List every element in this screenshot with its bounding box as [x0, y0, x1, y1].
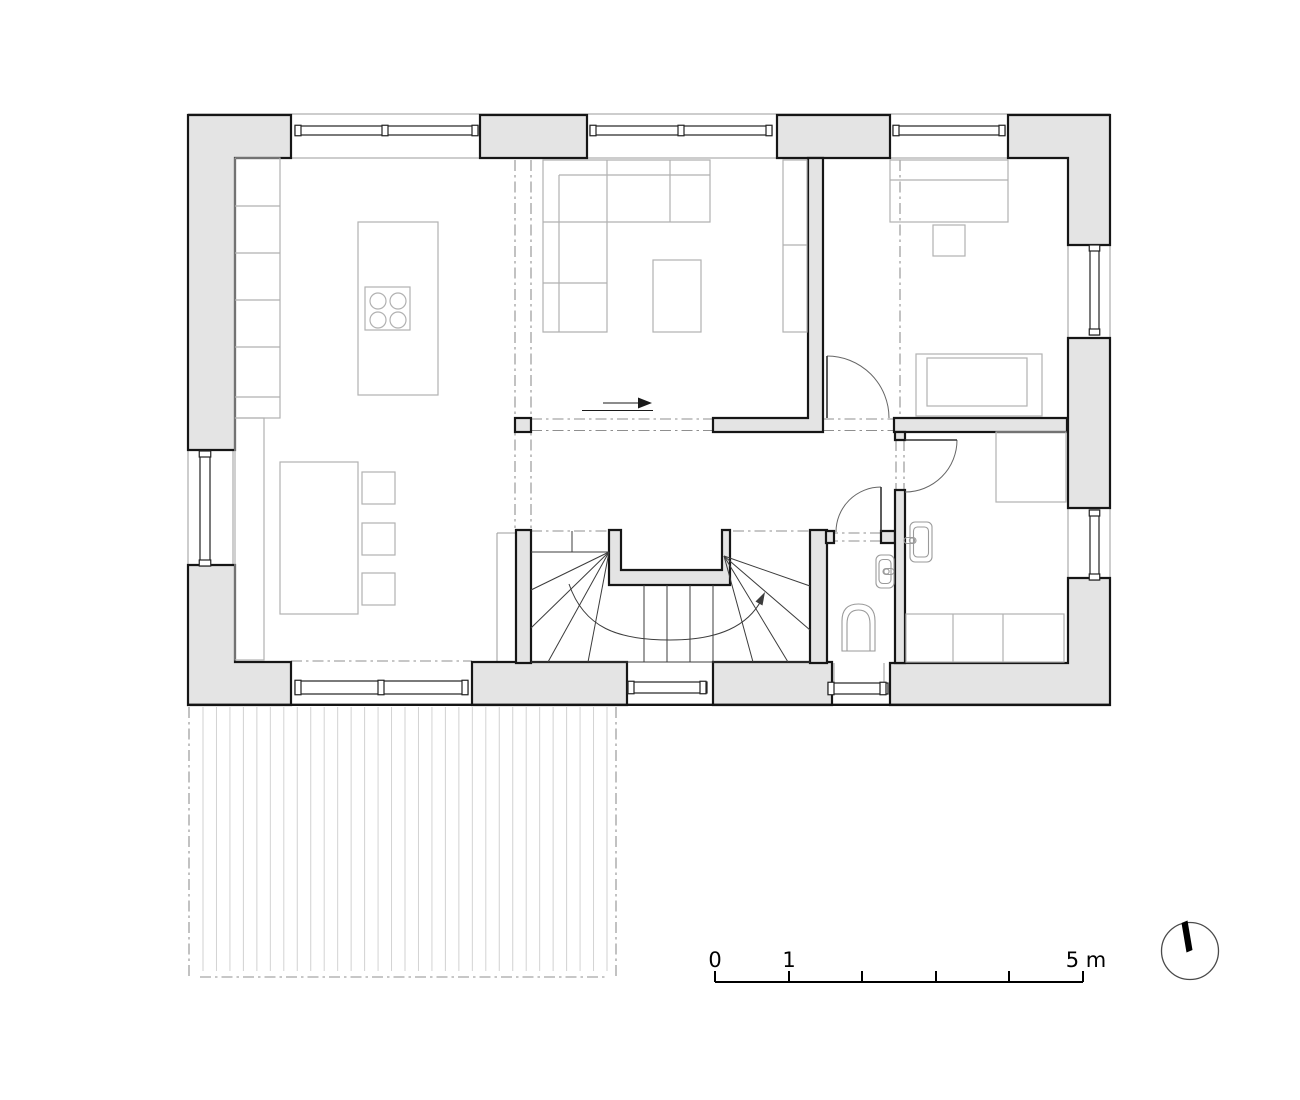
burner: [370, 312, 386, 328]
wall-stair-east: [810, 530, 827, 663]
window-right-1: [1090, 245, 1099, 335]
stair-line: [531, 552, 609, 590]
window-top-1-mullion: [472, 125, 478, 136]
stair-line: [724, 556, 810, 586]
arrow-head-icon: [638, 398, 652, 409]
wall-bath-west-stub: [895, 432, 905, 440]
pier-top-left: [188, 115, 291, 450]
wall-wc-north-a: [826, 531, 834, 543]
window-top-2-mullion: [678, 125, 684, 136]
window-top-1-mullion: [382, 125, 388, 136]
kitchen-counter: [235, 158, 280, 418]
stair-line: [724, 556, 810, 630]
window-bottom-3-mullion: [880, 682, 886, 695]
pier-top-right: [1008, 115, 1110, 245]
window-left: [200, 451, 210, 566]
staircase: [531, 531, 810, 662]
bed-mattress: [927, 358, 1027, 406]
wall-stair-core: [609, 530, 730, 585]
wall-stair-west: [516, 530, 531, 663]
wall-face-lines: [188, 114, 1110, 683]
window-right-2-mullion: [1089, 510, 1100, 516]
stair-line: [588, 552, 609, 662]
window-right-1-mullion: [1089, 329, 1100, 335]
window-bottom-3-mullion: [828, 682, 834, 695]
burner: [370, 293, 386, 309]
window-top-3-mullion: [893, 125, 899, 136]
bathroom-bench: [906, 614, 1064, 662]
stair-line: [548, 552, 609, 662]
window-top-3-mullion: [999, 125, 1005, 136]
tv-unit: [783, 160, 807, 332]
window-top-3: [893, 126, 1005, 135]
floor-plan: 0 1 5 m: [0, 0, 1300, 1100]
window-top-1-mullion: [295, 125, 301, 136]
wardrobe: [890, 160, 1008, 222]
wall-wc-north-b: [881, 531, 895, 543]
door-bedroom-swing: [827, 356, 889, 418]
pier-top-right-mid: [777, 115, 890, 158]
window-right-1-mullion: [1089, 245, 1100, 251]
scale-label-0: 0: [708, 948, 721, 972]
window-bottom-1-mullion: [295, 680, 301, 695]
burner: [390, 312, 406, 328]
cooktop: [365, 287, 410, 330]
chair: [362, 573, 395, 605]
flow-arrow: [582, 398, 653, 411]
door-bathroom-swing: [905, 440, 957, 492]
wall-bath-west: [895, 490, 905, 663]
pier-top-mid: [480, 115, 587, 158]
toilet-bowl: [847, 610, 870, 651]
terrace: [203, 707, 607, 971]
window-top-2-mullion: [766, 125, 772, 136]
window-right-2-mullion: [1089, 574, 1100, 580]
window-right-2: [1090, 510, 1099, 580]
window-bottom-2-mullion: [628, 681, 634, 694]
window-bottom-2: [628, 682, 707, 693]
bed: [916, 354, 1042, 416]
scale-label-1: 1: [782, 948, 795, 972]
window-top-2-mullion: [590, 125, 596, 136]
door-wc-swing: [836, 487, 881, 532]
stair-direction-arrow: [756, 592, 766, 606]
burner: [390, 293, 406, 309]
pier-bottom-mid-right: [713, 662, 832, 705]
window-left-mullion: [199, 451, 211, 457]
coffee-table: [653, 260, 701, 332]
pier-bottom-mid-left: [472, 662, 627, 705]
chair: [362, 523, 395, 555]
column: [515, 418, 531, 432]
shower: [996, 432, 1066, 502]
window-bottom-2-mullion: [700, 681, 706, 694]
nightstand: [933, 225, 965, 256]
window-bottom-3: [828, 683, 888, 694]
scale-bar: [715, 971, 1083, 982]
doors: [827, 356, 957, 532]
scale-label-2: 5 m: [1066, 948, 1107, 972]
pier-bottom-left: [188, 565, 291, 705]
stair-line: [531, 552, 609, 628]
stair-line: [724, 556, 753, 662]
sofa: [543, 160, 710, 332]
chair: [362, 472, 395, 504]
north-arrow: [1162, 921, 1219, 980]
window-bottom-1-mullion: [378, 680, 384, 695]
wall-bedroom-south: [894, 418, 1067, 432]
faucet-knob: [884, 569, 889, 574]
pier-bottom-right: [890, 578, 1110, 705]
dining-table: [280, 462, 358, 614]
kitchen-sideboard: [235, 418, 264, 660]
window-bottom-1-mullion: [462, 680, 468, 695]
floor-plan-drawing: [0, 0, 1300, 1100]
pier-right-mid: [1068, 338, 1110, 508]
window-left-mullion: [199, 560, 211, 566]
